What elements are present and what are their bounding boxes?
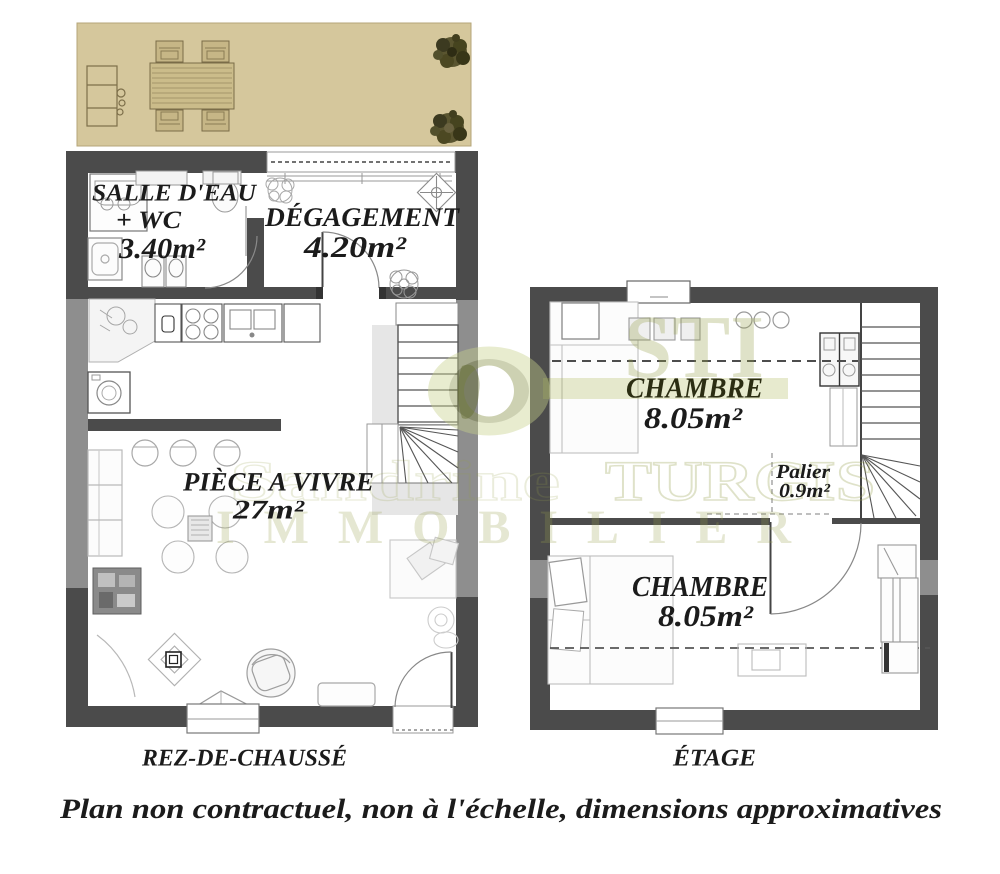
svg-text:REZ-DE-CHAUSSÉ: REZ-DE-CHAUSSÉ bbox=[141, 745, 347, 772]
svg-text:TURGIS: TURGIS bbox=[605, 450, 875, 513]
svg-text:ÉTAGE: ÉTAGE bbox=[672, 745, 756, 772]
svg-text:CHAMBRE: CHAMBRE bbox=[626, 373, 763, 405]
svg-text:27m²: 27m² bbox=[232, 495, 305, 525]
svg-text:SALLE D'EAU: SALLE D'EAU bbox=[92, 181, 258, 207]
svg-text:+ WC: + WC bbox=[116, 207, 181, 234]
svg-text:3.40m²: 3.40m² bbox=[118, 233, 206, 265]
svg-text:0.9m²: 0.9m² bbox=[779, 480, 831, 502]
svg-text:8.05m²: 8.05m² bbox=[644, 402, 743, 435]
svg-text:Plan non contractuel, non à l': Plan non contractuel, non à l'échelle, d… bbox=[59, 794, 942, 825]
svg-text:8.05m²: 8.05m² bbox=[658, 600, 754, 633]
svg-text:4.20m²: 4.20m² bbox=[303, 231, 407, 264]
svg-text:DÉGAGEMENT: DÉGAGEMENT bbox=[264, 202, 461, 232]
svg-text:PIÈCE A VIVRE: PIÈCE A VIVRE bbox=[182, 467, 374, 497]
svg-text:CHAMBRE: CHAMBRE bbox=[632, 571, 768, 603]
